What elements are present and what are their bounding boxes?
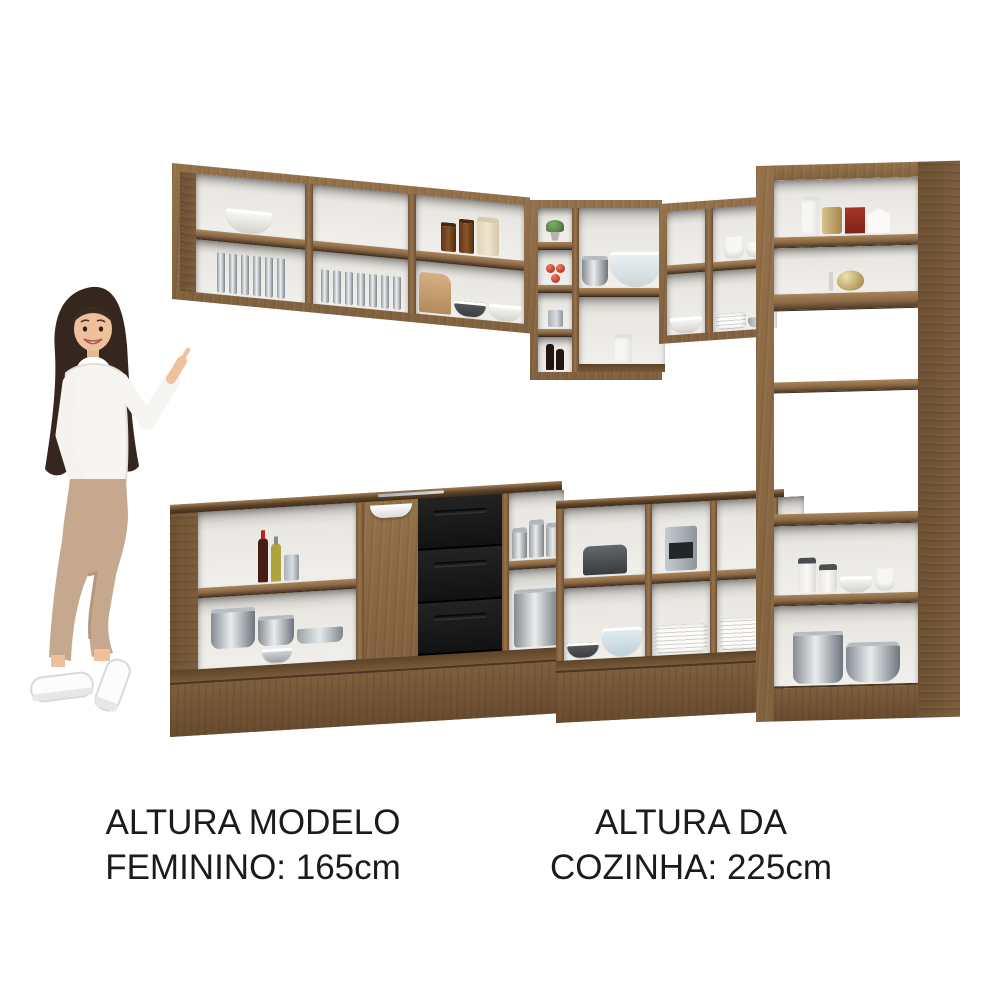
- cabinet-side-panel: [180, 172, 196, 293]
- book: [831, 272, 833, 291]
- drinking-glass: [265, 257, 273, 298]
- wine-bottle: [546, 344, 554, 370]
- tall-cabinet-side-panel: [918, 161, 960, 718]
- plant: [546, 220, 564, 232]
- kitchen-height-line2: COZINHA: 225cm: [521, 845, 861, 890]
- white-bowl-stack: [489, 304, 521, 322]
- napkin-stack: [868, 208, 890, 234]
- gold-kettle: [837, 270, 864, 291]
- shelf-plates: [652, 581, 710, 656]
- drawer: [418, 598, 502, 655]
- white-pot: [875, 568, 895, 591]
- shelf-books-kettle: [774, 245, 918, 295]
- coffee-machine: [665, 526, 697, 572]
- gold-tin: [822, 207, 842, 235]
- drinking-glass: [381, 275, 389, 309]
- brown-jar: [459, 219, 474, 254]
- niche-plant: [538, 208, 572, 242]
- drinking-glass: [217, 252, 225, 293]
- base-cabinet-right-run: [556, 489, 784, 723]
- metal-pot: [846, 641, 900, 682]
- niche-bottles: [538, 337, 572, 373]
- large-stock-pot: [514, 587, 560, 648]
- niche-tomatoes: [538, 250, 572, 286]
- model-sweater: [63, 364, 172, 481]
- red-box: [845, 208, 865, 235]
- shelf-metal-pots: [774, 603, 918, 687]
- metal-canister: [512, 527, 527, 559]
- white-canister: [615, 334, 632, 362]
- plate-stack: [655, 623, 707, 654]
- open-compartment: [774, 389, 918, 514]
- sink-drainer-rail: [378, 490, 444, 497]
- tomato: [546, 264, 555, 273]
- drinking-glass: [253, 256, 261, 297]
- drinking-glass: [345, 272, 353, 306]
- tall-cabinet: [756, 161, 960, 722]
- sauce-pot: [258, 614, 294, 646]
- shelf-board-and-bowls: [416, 260, 524, 323]
- plate-stack: [716, 312, 746, 330]
- shelf-jars: [416, 194, 524, 260]
- tomato: [551, 274, 560, 283]
- dark-bowl: [567, 642, 599, 659]
- niche-mug: [538, 293, 572, 329]
- model-height-line1: ALTURA MODELO: [83, 800, 423, 845]
- shelf-canisters-top: [774, 177, 918, 238]
- metal-pot: [582, 256, 608, 286]
- white-bowl: [840, 576, 872, 592]
- model-height-line2: FEMININO: 165cm: [83, 845, 423, 890]
- wall-cabinet-right-run: [659, 197, 763, 344]
- book-stack: [829, 273, 833, 291]
- ceramic-jar: [798, 557, 816, 592]
- shelf-ceramic-jars: [774, 523, 918, 595]
- female-model: [26, 283, 192, 741]
- shelf-drinking-glasses: [313, 251, 408, 313]
- drawer-handle: [433, 612, 487, 620]
- frying-pan: [297, 626, 343, 644]
- wall-cabinet-left-run: [172, 163, 530, 333]
- drinking-glass: [321, 269, 329, 303]
- shelf-white-pots: [667, 209, 705, 266]
- cabinet-side-panel: [170, 512, 198, 671]
- drinking-glass: [369, 274, 377, 308]
- kitchen-height-line1: ALTURA DA: [521, 800, 861, 845]
- drinking-glass: [393, 276, 401, 310]
- shelf-dark-and-blue-bowls: [564, 584, 645, 660]
- shelf-bowls-bottles: [198, 503, 356, 589]
- shelf-stacked-bowls: [579, 297, 665, 364]
- stock-pot: [211, 607, 255, 650]
- cream-jar: [477, 216, 499, 256]
- oil-bottle: [271, 543, 281, 582]
- utensil-cup: [284, 554, 299, 581]
- ceramic-jar: [819, 564, 837, 592]
- drinking-glass: [241, 255, 249, 296]
- white-pot: [724, 236, 744, 259]
- white-bowl: [226, 208, 272, 234]
- kitchen-height-caption: ALTURA DA COZINHA: 225cm: [521, 800, 861, 890]
- sink-bowl: [370, 503, 412, 519]
- shelf-pots-pans: [198, 589, 356, 670]
- tomato: [556, 264, 565, 273]
- dark-bowl-stack: [454, 300, 486, 318]
- cutting-board: [419, 272, 451, 315]
- drinking-glass: [229, 253, 237, 294]
- white-bowl: [670, 316, 702, 333]
- white-canister: [802, 197, 819, 235]
- toaster: [583, 544, 627, 575]
- drinking-glass: [333, 270, 341, 304]
- plinth: [556, 659, 784, 723]
- sink-cabinet: [364, 499, 418, 659]
- drawer: [418, 546, 502, 603]
- blue-glass-bowl: [602, 626, 642, 656]
- wine-bottle: [258, 538, 268, 583]
- metal-bowl: [262, 648, 292, 664]
- wine-bottle: [556, 349, 564, 370]
- flower-pot: [549, 232, 561, 241]
- shelf-drinking-glasses: [196, 239, 305, 303]
- drinking-glass: [357, 273, 365, 307]
- plinth: [774, 683, 918, 722]
- drinking-glass: [277, 258, 285, 299]
- model-sneakers: [30, 649, 133, 714]
- shelf-cups-saucers: [313, 185, 408, 250]
- tall-cabinet-left-stile: [756, 166, 774, 722]
- metal-pot: [793, 631, 843, 684]
- drawer-stack: [418, 494, 502, 656]
- drawer-handle: [433, 508, 487, 516]
- drawer-handle: [433, 560, 487, 568]
- drawer: [418, 494, 502, 551]
- corner-wall-cabinet: [530, 200, 662, 380]
- model-trousers: [49, 479, 128, 661]
- shelf-toaster: [564, 504, 645, 578]
- base-cabinet-left-run: [170, 481, 562, 737]
- glass-bowl: [610, 252, 662, 286]
- product-image: ALTURA MODELO FEMININO: 165cm ALTURA DA …: [0, 0, 1000, 1000]
- shelf-coffee-machine: [652, 501, 710, 574]
- model-height-caption: ALTURA MODELO FEMININO: 165cm: [83, 800, 423, 890]
- shelf-glass-bowl: [579, 208, 665, 288]
- open-compartment: [774, 308, 918, 382]
- brown-jar: [441, 222, 456, 252]
- metal-canister: [529, 519, 544, 558]
- shelf-bowls: [667, 272, 705, 336]
- metal-mug: [548, 310, 563, 327]
- shelf-bowl-and-cups: [196, 173, 305, 240]
